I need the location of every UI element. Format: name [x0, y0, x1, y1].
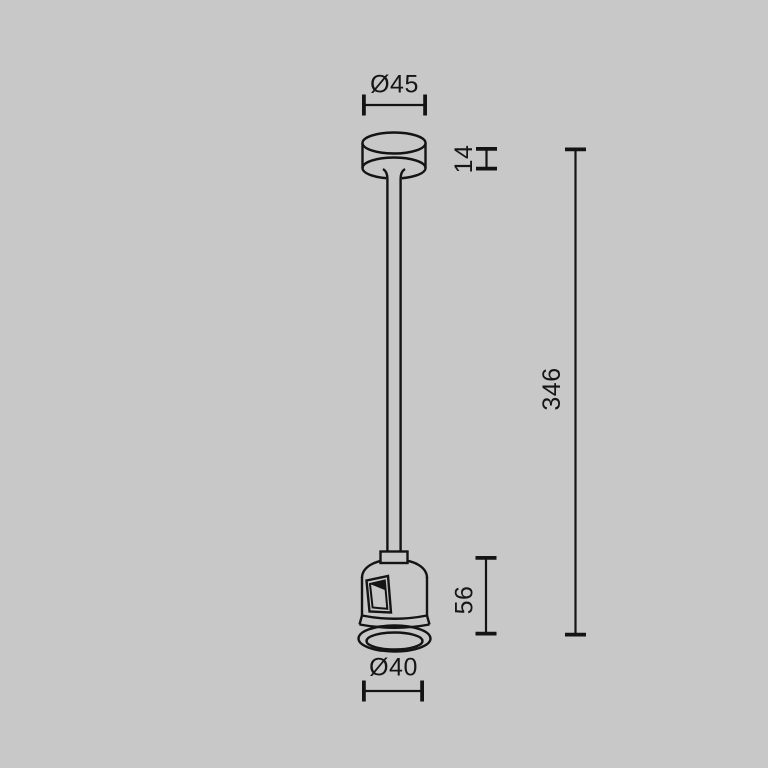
connector: [359, 552, 431, 652]
suspension-rod: [383, 169, 405, 553]
dim-label-top-diameter: Ø45: [370, 71, 419, 99]
drawing-canvas: Ø45 14 346 56 Ø40: [0, 0, 768, 768]
rod-left-edge: [383, 169, 387, 553]
dim-label-canopy-height: 14: [450, 145, 478, 174]
dim-overall-length: 346: [538, 149, 586, 635]
connector-band-right-stub: [427, 616, 430, 625]
rod-right-edge: [401, 169, 405, 553]
dim-label-overall-length: 346: [538, 367, 566, 410]
dim-connector-diameter: Ø40: [363, 654, 423, 702]
technical-drawing: Ø45 14 346 56 Ø40: [0, 0, 768, 768]
dim-label-connector-diameter: Ø40: [369, 654, 418, 682]
dim-top-diameter: Ø45: [363, 71, 426, 116]
dim-canopy-height: 14: [450, 145, 497, 174]
rod-collar: [381, 552, 408, 564]
canopy-top-ellipse: [363, 133, 426, 154]
connector-band-left-stub: [360, 616, 363, 625]
dim-label-connector-height: 56: [451, 586, 479, 615]
dim-connector-height: 56: [451, 558, 497, 635]
